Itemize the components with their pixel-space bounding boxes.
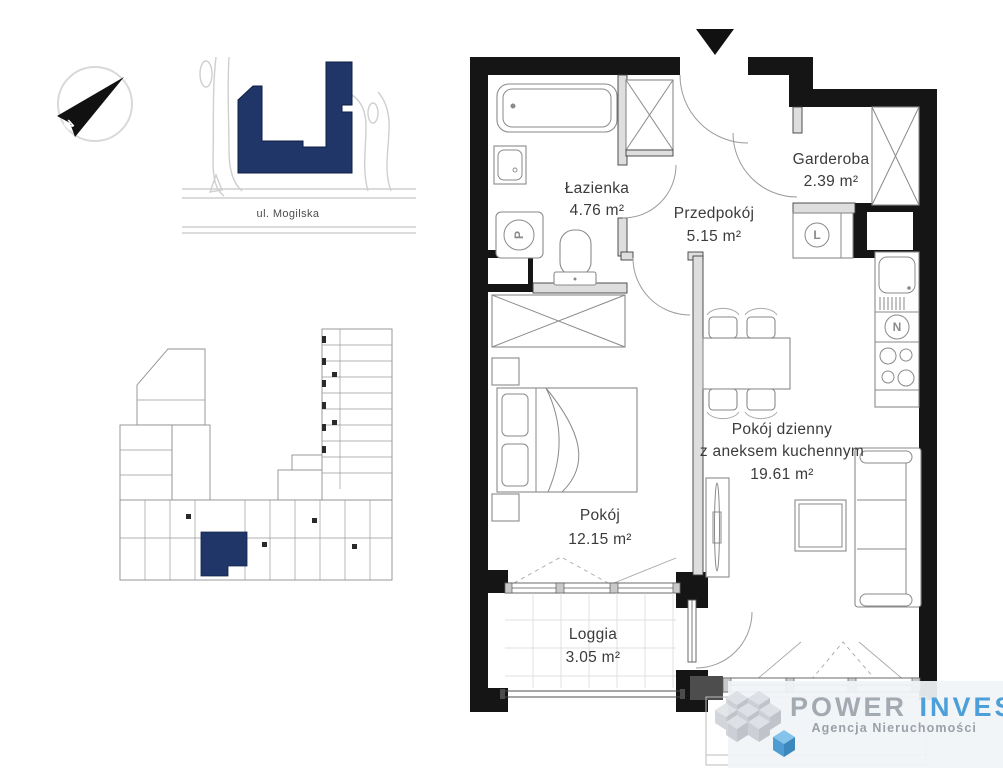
chair	[707, 412, 739, 419]
loggia-railing	[500, 689, 685, 699]
chair	[709, 389, 737, 410]
brand-text: POWER INVEST	[790, 692, 1003, 722]
chair	[745, 412, 777, 419]
floor-plan-page: N ul. Mogilska	[0, 0, 1003, 768]
room-label-pokoj-dzienny-2: z aneksem kuchennym	[700, 443, 864, 460]
area-label-garderoba: 2.39 m²	[804, 173, 859, 190]
dining-set	[703, 308, 790, 418]
washing-machine: P	[496, 212, 543, 258]
entrance-marker-icon	[696, 29, 734, 55]
window-open-symbol	[614, 558, 676, 583]
room-label-lazienka: Łazienka	[565, 180, 630, 197]
north-compass: N	[57, 67, 132, 141]
overview-block	[172, 425, 210, 500]
tree-outline	[368, 103, 378, 123]
chair	[707, 308, 739, 315]
area-label-przedpokoj: 5.15 m²	[687, 228, 742, 245]
bed	[497, 388, 637, 492]
washing-machine-symbol: P	[512, 231, 526, 239]
overview-block	[137, 349, 205, 425]
bedroom	[492, 295, 637, 521]
nightstand	[492, 358, 519, 385]
room-label-pokoj-dzienny-1: Pokój dzienny	[732, 421, 832, 438]
chair	[709, 317, 737, 338]
tree-outline	[200, 61, 212, 87]
area-label-lazienka: 4.76 m²	[570, 202, 625, 219]
wardrobe-bedroom	[492, 295, 625, 347]
chair	[747, 317, 775, 338]
dining-table	[703, 338, 790, 389]
loggia-balcony-door-arc	[696, 612, 752, 668]
tv-unit	[706, 478, 729, 577]
dishwasher-symbol: N	[893, 320, 902, 334]
floor-plan: P L	[470, 29, 937, 765]
site-building-shape	[238, 62, 352, 173]
area-label-loggia: 3.05 m²	[566, 649, 621, 666]
fridge-symbol: L	[813, 228, 820, 242]
site-map: ul. Mogilska	[182, 57, 416, 233]
brand-word-invest: INVEST	[919, 692, 1003, 722]
overview-plan	[120, 329, 392, 580]
room-label-przedpokoj: Przedpokój	[674, 205, 755, 222]
bedroom-door-arc	[633, 258, 690, 315]
chair	[745, 308, 777, 315]
bathtub	[497, 84, 617, 132]
room-label-pokoj: Pokój	[580, 507, 620, 524]
nightstand	[492, 494, 519, 521]
room-label-garderoba: Garderoba	[793, 151, 870, 168]
street-line	[213, 57, 224, 196]
wardrobe-garderoba	[872, 107, 919, 205]
toilet	[554, 230, 596, 285]
room-label-loggia: Loggia	[569, 626, 617, 643]
hall-closet	[626, 80, 673, 156]
overview-block	[120, 500, 392, 580]
window-tilt-symbol	[514, 557, 608, 583]
logo-band: POWER INVEST Agencja Nieruchomości	[715, 681, 1003, 768]
brand-word-power: POWER	[790, 692, 907, 722]
entrance-door-arc	[680, 75, 748, 143]
drainer	[880, 297, 904, 310]
area-label-pokoj: 12.15 m²	[568, 531, 632, 548]
logo-subtitle: Agencja Nieruchomości	[811, 721, 977, 735]
street-label: ul. Mogilska	[257, 208, 320, 220]
chair	[747, 389, 775, 410]
plan-canvas: N ul. Mogilska	[0, 0, 1003, 768]
street-line	[378, 92, 391, 191]
area-label-pokoj-dzienny: 19.61 m²	[750, 466, 814, 483]
sofa	[855, 448, 921, 607]
coffee-table	[795, 500, 846, 551]
street-line	[352, 95, 368, 191]
washbasin	[494, 146, 526, 184]
fridge	[793, 213, 853, 258]
overview-tower	[322, 329, 392, 500]
bathroom-door-arc	[623, 165, 676, 218]
